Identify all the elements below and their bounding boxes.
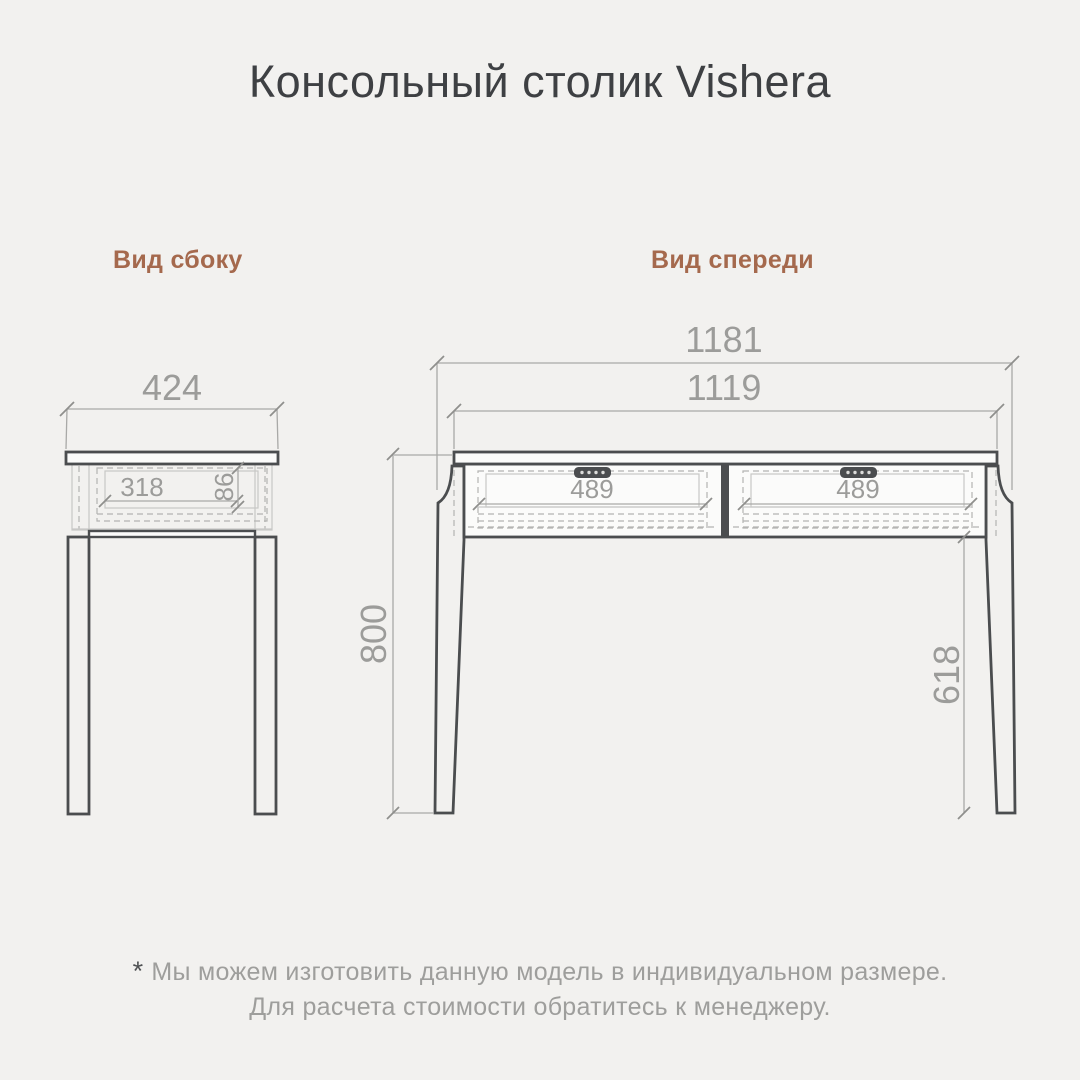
side-dim-424-group: 424 (60, 367, 284, 449)
technical-drawing: 424 318 86 (0, 0, 1080, 1080)
asterisk: * (133, 956, 144, 986)
dim-front-top-width: 1119 (687, 367, 762, 408)
footnote: *Мы можем изготовить данную модель в инд… (0, 954, 1080, 1025)
dim-drawer-right-width: 489 (836, 474, 879, 504)
extension-line (66, 409, 67, 449)
side-tabletop (66, 452, 278, 464)
front-leg-left (435, 466, 464, 813)
front-dim-1119-group: 1119 (447, 367, 1004, 449)
front-tabletop (454, 452, 997, 464)
front-view-drawing: 489 489 (353, 319, 1019, 819)
dim-front-leg-height: 618 (926, 645, 967, 705)
dim-side-drawer-depth: 318 (120, 472, 163, 502)
drawer-divider (721, 464, 729, 537)
footnote-line1-text: Мы можем изготовить данную модель в инди… (151, 958, 947, 986)
dim-front-total-height: 800 (353, 604, 394, 664)
side-dim-86-group: 86 (209, 462, 244, 513)
dim-drawer-left-width: 489 (570, 474, 613, 504)
side-bottom-rail (89, 531, 255, 537)
front-leg-right (986, 466, 1015, 813)
side-leg-left (68, 537, 89, 814)
front-dim-618-group: 618 (926, 531, 970, 819)
dim-side-total-depth: 424 (142, 367, 202, 408)
dim-front-total-width: 1181 (685, 319, 762, 360)
dim-side-drawer-height: 86 (209, 473, 239, 502)
footnote-line1: *Мы можем изготовить данную модель в инд… (0, 954, 1080, 990)
side-leg-right (255, 537, 276, 814)
extension-line (277, 409, 278, 449)
side-view-drawing: 424 318 86 (60, 367, 284, 814)
footnote-line2: Для расчета стоимости обратитесь к менед… (0, 990, 1080, 1025)
